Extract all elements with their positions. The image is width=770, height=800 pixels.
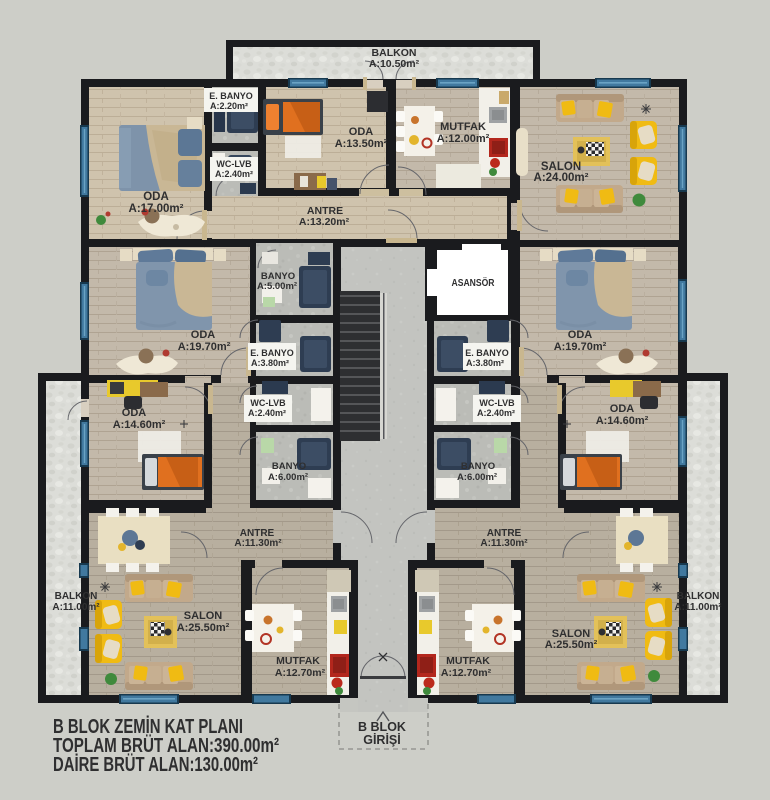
svg-text:A:14.60m²: A:14.60m² [596,415,649,427]
svg-text:A:2.40m²: A:2.40m² [248,408,286,418]
svg-text:E. BANYO: E. BANYO [465,348,509,358]
svg-text:A:11.00m²: A:11.00m² [52,602,100,613]
svg-text:BANYO: BANYO [272,461,306,472]
svg-text:A:10.50m²: A:10.50m² [369,58,420,70]
svg-text:A:12.70m²: A:12.70m² [275,667,326,679]
svg-text:WC-LVB: WC-LVB [250,398,286,408]
svg-text:ODA: ODA [349,126,374,138]
svg-text:A:17.00m²: A:17.00m² [129,203,184,215]
svg-text:MUTFAK: MUTFAK [446,655,490,667]
svg-text:BALKON: BALKON [55,591,98,602]
svg-text:A:5.00m²: A:5.00m² [257,281,297,292]
svg-text:BALKON: BALKON [677,591,720,602]
svg-text:A:2.40m²: A:2.40m² [215,169,253,179]
svg-text:DAİRE BRÜT ALAN:130.00m²: DAİRE BRÜT ALAN:130.00m² [53,753,258,776]
svg-text:A:11.00m²: A:11.00m² [674,602,722,613]
svg-text:BANYO: BANYO [461,461,495,472]
svg-text:A:6.00m²: A:6.00m² [268,472,308,483]
svg-text:E. BANYO: E. BANYO [250,348,294,358]
svg-text:ODA: ODA [143,191,169,203]
svg-text:A:13.50m²: A:13.50m² [335,138,388,150]
svg-text:B BLOK: B BLOK [358,720,406,734]
svg-text:A:25.50m²: A:25.50m² [177,622,230,634]
svg-text:WC-LVB: WC-LVB [216,159,252,169]
svg-text:ASANSÖR: ASANSÖR [452,276,496,289]
svg-text:WC-LVB: WC-LVB [479,398,515,408]
svg-text:E. BANYO: E. BANYO [209,91,253,101]
svg-text:A:6.00m²: A:6.00m² [457,472,497,483]
svg-text:MUTFAK: MUTFAK [276,655,320,667]
svg-text:A:3.80m²: A:3.80m² [251,358,289,368]
svg-text:A:3.80m²: A:3.80m² [466,358,504,368]
svg-text:A:11.30m²: A:11.30m² [480,538,528,549]
svg-text:ODA: ODA [610,403,635,415]
svg-text:A:19.70m²: A:19.70m² [554,341,607,353]
svg-text:GİRİŞİ: GİRİŞİ [363,732,401,747]
svg-text:ODA: ODA [191,329,216,341]
svg-text:A:19.70m²: A:19.70m² [178,341,231,353]
svg-text:SALON: SALON [184,610,223,622]
svg-text:A:12.00m²: A:12.00m² [437,133,490,145]
svg-text:A:2.40m²: A:2.40m² [477,408,515,418]
svg-text:ODA: ODA [122,407,147,419]
svg-text:A:14.60m²: A:14.60m² [113,419,166,431]
svg-text:A:24.00m²: A:24.00m² [534,172,589,184]
svg-text:ODA: ODA [568,329,593,341]
svg-text:A:13.20m²: A:13.20m² [299,216,350,228]
svg-text:A:25.50m²: A:25.50m² [545,639,598,651]
svg-text:A:2.20m²: A:2.20m² [210,101,248,111]
svg-text:A:11.30m²: A:11.30m² [234,538,282,549]
svg-text:A:12.70m²: A:12.70m² [441,667,492,679]
svg-text:MUTFAK: MUTFAK [440,121,486,133]
